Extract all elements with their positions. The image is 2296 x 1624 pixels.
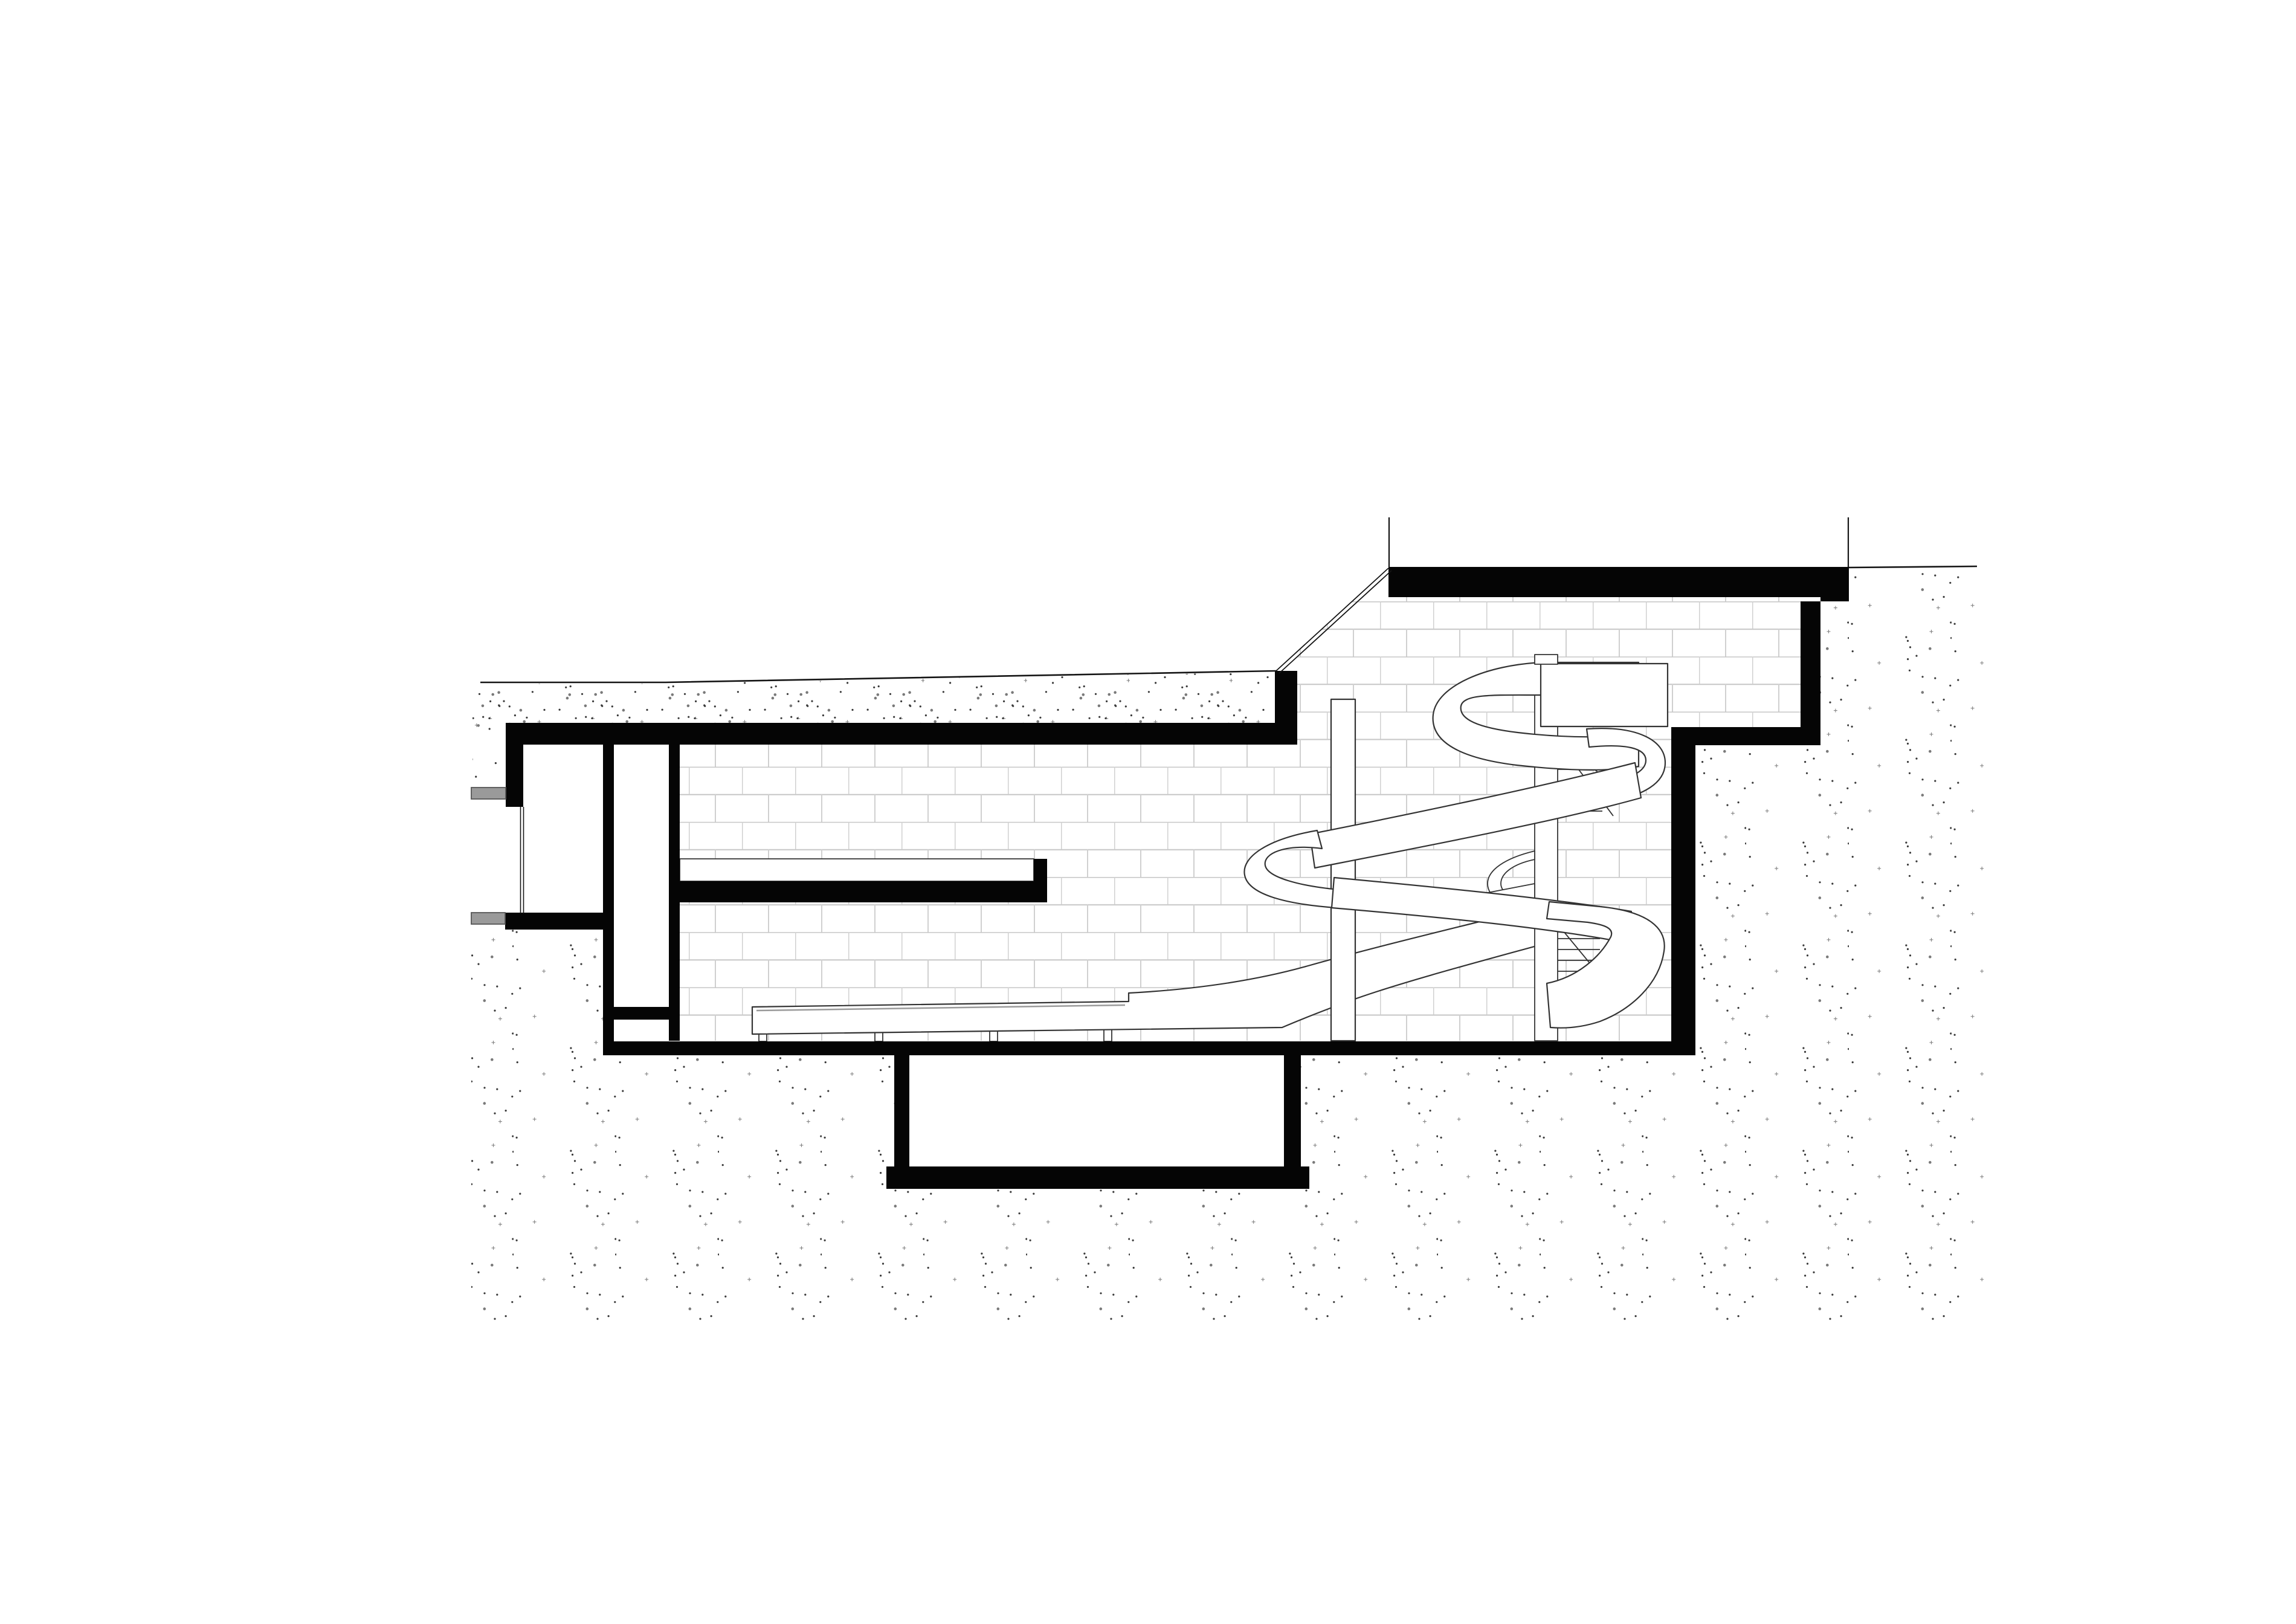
shelf-end-cap <box>1034 859 1047 902</box>
section-drawing-canvas <box>0 0 2296 1624</box>
left-outer-wall-head <box>506 745 523 807</box>
hall-end-wall <box>669 745 680 1041</box>
vestibule-floor <box>505 913 603 930</box>
right-upper-wall <box>1801 601 1820 727</box>
upper-roof-slab <box>1388 567 1849 601</box>
stair-pole-cap <box>1535 655 1558 664</box>
pit-left-wall <box>894 1055 909 1169</box>
wall-footing-band <box>614 1007 676 1020</box>
pit-right-wall <box>1284 1055 1301 1169</box>
slide-platform-box <box>1541 664 1668 726</box>
slide-support-post <box>1331 699 1355 1041</box>
pit-floor-slab <box>886 1166 1309 1189</box>
right-step-ledge <box>1671 727 1820 745</box>
hall-floor-slab <box>614 1041 1695 1055</box>
upper-pipe <box>471 788 506 799</box>
left-inner-wall <box>603 745 614 1055</box>
right-lower-wall <box>1671 745 1695 1055</box>
wall-shelf <box>680 859 1034 881</box>
lower-pipe <box>471 913 505 924</box>
section-drawing-page <box>0 0 2296 1624</box>
shelf-body <box>680 859 1034 881</box>
shelf-underside <box>680 881 1047 902</box>
